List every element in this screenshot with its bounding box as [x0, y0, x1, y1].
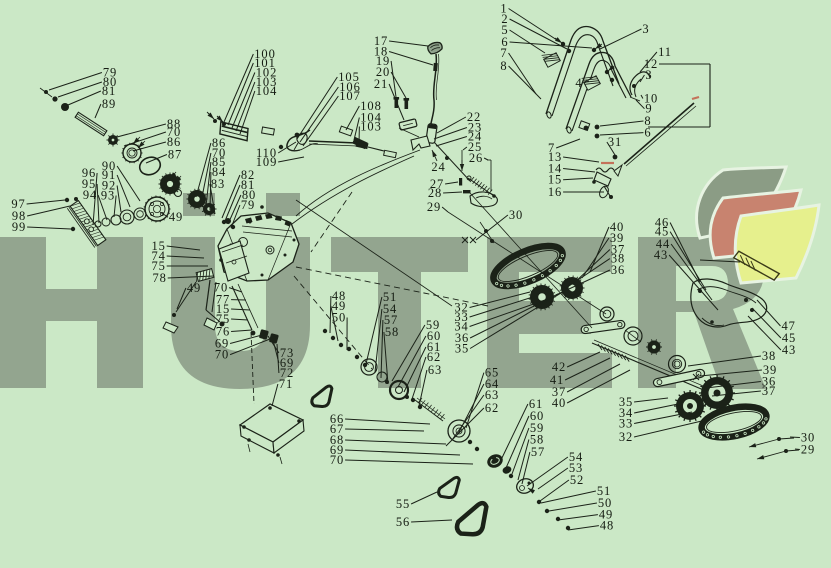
svg-text:28: 28: [428, 186, 442, 200]
svg-text:71: 71: [279, 377, 293, 391]
svg-text:52: 52: [570, 473, 584, 487]
svg-text:70: 70: [215, 348, 229, 362]
svg-text:55: 55: [396, 497, 410, 511]
svg-text:93: 93: [101, 189, 115, 203]
svg-text:21: 21: [374, 77, 388, 91]
svg-text:16: 16: [548, 185, 562, 199]
svg-text:104: 104: [256, 84, 277, 98]
svg-text:83: 83: [211, 177, 225, 191]
svg-text:8: 8: [500, 59, 507, 73]
svg-text:56: 56: [396, 515, 410, 529]
svg-text:87: 87: [168, 148, 182, 162]
svg-text:33: 33: [619, 417, 633, 431]
svg-text:40: 40: [552, 396, 566, 410]
svg-text:7: 7: [500, 46, 507, 60]
svg-text:79: 79: [241, 198, 255, 212]
svg-text:29: 29: [801, 443, 815, 457]
svg-text:103: 103: [360, 120, 381, 134]
svg-text:63: 63: [428, 363, 442, 377]
svg-text:4: 4: [575, 76, 582, 90]
svg-text:81: 81: [102, 84, 116, 98]
svg-text:109: 109: [256, 155, 277, 169]
svg-text:43: 43: [654, 248, 668, 262]
svg-text:35: 35: [455, 342, 469, 356]
svg-text:62: 62: [427, 350, 441, 364]
svg-text:42: 42: [552, 360, 566, 374]
svg-text:26: 26: [469, 151, 483, 165]
svg-text:6: 6: [644, 126, 651, 140]
svg-text:50: 50: [332, 311, 346, 325]
svg-text:29: 29: [427, 200, 441, 214]
svg-text:3: 3: [645, 68, 652, 82]
svg-text:38: 38: [762, 349, 776, 363]
svg-text:99: 99: [12, 220, 26, 234]
svg-text:24: 24: [431, 160, 445, 174]
svg-text:107: 107: [339, 89, 360, 103]
svg-text:3: 3: [642, 22, 649, 36]
svg-text:89: 89: [102, 97, 116, 111]
svg-text:70: 70: [330, 453, 344, 467]
svg-text:32: 32: [619, 430, 633, 444]
svg-text:62: 62: [485, 401, 499, 415]
svg-text:43: 43: [782, 343, 796, 357]
svg-text:58: 58: [385, 325, 399, 339]
svg-text:78: 78: [152, 271, 166, 285]
svg-text:30: 30: [509, 208, 523, 222]
svg-text:94: 94: [83, 188, 97, 202]
svg-text:49: 49: [169, 210, 183, 224]
svg-text:49: 49: [187, 281, 201, 295]
svg-text:11: 11: [658, 45, 672, 59]
svg-text:37: 37: [762, 384, 776, 398]
svg-text:36: 36: [611, 263, 625, 277]
svg-text:63: 63: [485, 388, 499, 402]
svg-text:48: 48: [600, 519, 614, 533]
svg-text:57: 57: [531, 445, 545, 459]
